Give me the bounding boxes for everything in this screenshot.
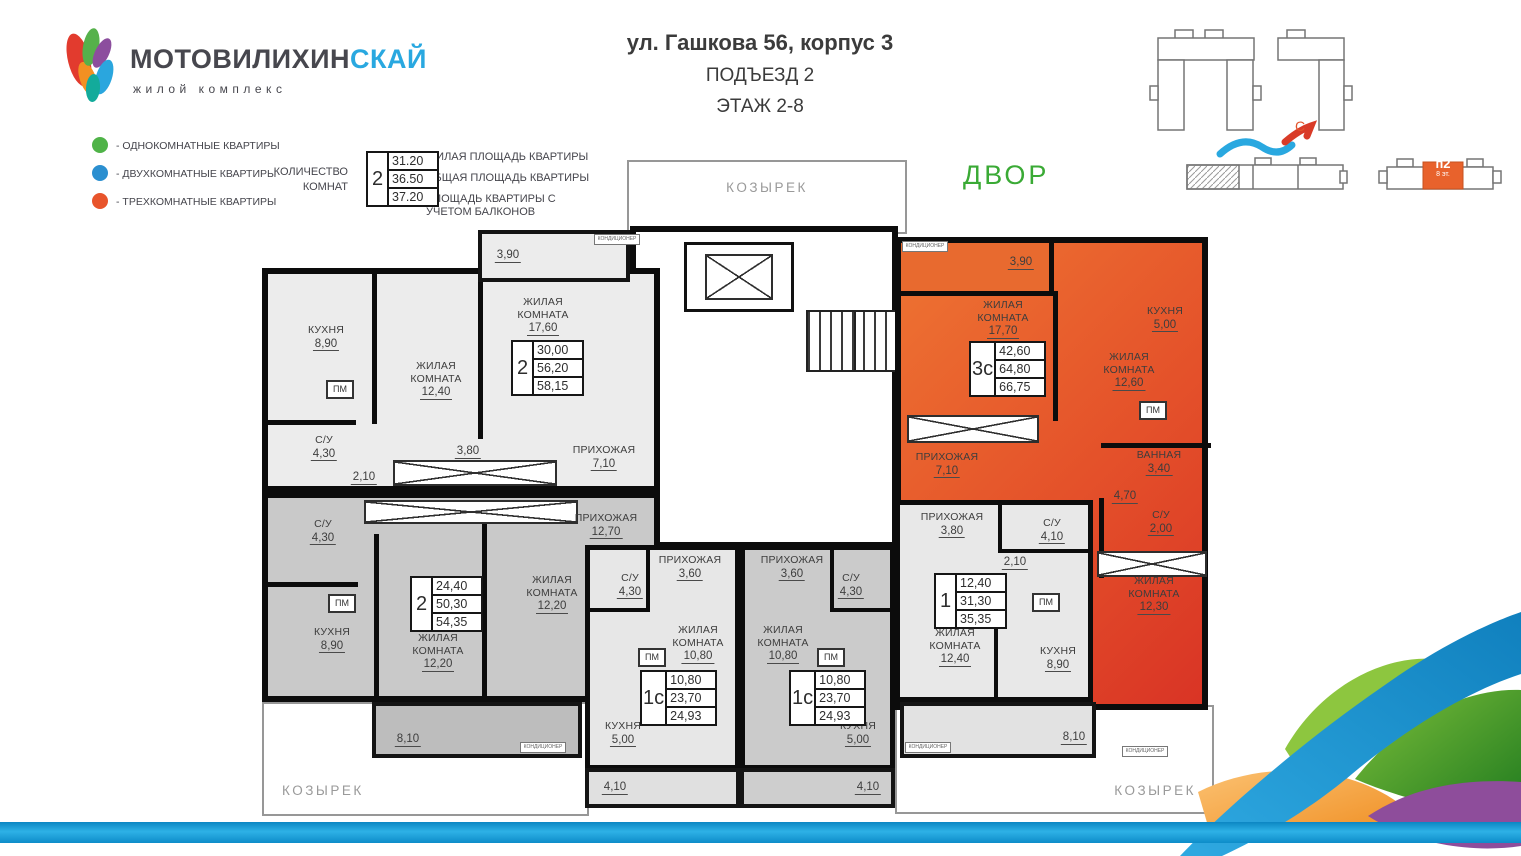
room-label-kitchen: КУХНЯ 8,90 [314, 626, 350, 653]
room-label-hallway: ПРИХОЖАЯ 7,10 [916, 451, 979, 478]
washing-machine-slot: ПМ [1139, 401, 1167, 420]
room-label-bedroom2: ЖИЛАЯ КОМНАТА 17,60 [499, 296, 587, 336]
room-label-bathroom: С/У 4,30 [310, 518, 336, 545]
room-label-bedroom1: ЖИЛАЯ КОМНАТА 12,40 [392, 360, 480, 400]
legend-dot-1room [92, 137, 108, 153]
apartment-d-infobox: 1с 10,80 23,70 24,93 [640, 670, 717, 726]
conditioner-tag: КОНДИЦИОНЕР [520, 742, 566, 753]
brand-tagline: жилой комплекс [133, 82, 286, 96]
hall-closet [364, 500, 578, 524]
room-label-kitchen: КУХНЯ 8,90 [308, 324, 344, 351]
legend-dot-2room [92, 165, 108, 181]
legend-rooms-count-label: КОЛИЧЕСТВО КОМНАТ [262, 165, 348, 195]
legend-sample-total: 36.50 [389, 171, 437, 189]
washing-machine-slot: ПМ [326, 380, 354, 399]
washing-machine-slot: ПМ [638, 648, 666, 667]
room-label-wc: С/У 2,00 [1148, 509, 1174, 536]
site-floors-label: 8 эт. [1436, 171, 1450, 179]
apartment-c-living: 24,40 [433, 578, 481, 596]
balcony-area-label: 8,10 [395, 732, 421, 747]
apartment-e-rooms: 1с [791, 672, 816, 724]
bottom-wave-bar [0, 822, 1521, 843]
apartment-f-living: 12,40 [957, 575, 1005, 593]
balcony-area-label: 4,10 [602, 780, 628, 795]
room-label-bathroom: ВАННАЯ 3,40 [1137, 449, 1182, 476]
washing-machine-slot: ПМ [328, 594, 356, 613]
apartment-d-balcony: 4,10 [585, 768, 740, 808]
brand-name: МОТОВИЛИХИНСКАЙ [130, 44, 427, 75]
page-title: ул. Гашкова 56, корпус 3 ПОДЪЕЗД 2 ЭТАЖ … [627, 30, 894, 118]
apartment-d-rooms: 1с [642, 672, 667, 724]
apartment-f-rooms: 1 [936, 575, 957, 627]
corridor-area-label: 2,10 [1002, 555, 1028, 570]
room-label-kitchen: КУХНЯ 8,90 [1040, 645, 1076, 672]
balcony-area-label: 8,10 [1061, 730, 1087, 745]
room-label-living: ЖИЛАЯ КОМНАТА 12,40 [911, 627, 999, 667]
address-title: ул. Гашкова 56, корпус 3 [627, 30, 894, 56]
brand-name-dark: МОТОВИЛИХИН [130, 44, 350, 74]
apartment-d-total-balcony: 24,93 [667, 708, 715, 724]
elevator-car [705, 254, 773, 300]
entrance-subtitle: ПОДЪЕЗД 2 [627, 65, 894, 87]
site-entrance-label[interactable]: п2 [1435, 157, 1450, 170]
legend-area-descriptions: ЖИЛАЯ ПЛОЩАДЬ КВАРТИРЫ ОБЩАЯ ПЛОЩАДЬ КВА… [426, 147, 601, 219]
room-label-hallway: ПРИХОЖАЯ 3,80 [921, 511, 984, 538]
room-label-bedroom2: ЖИЛАЯ КОМНАТА 12,20 [508, 574, 596, 614]
conditioner-tag: КОНДИЦИОНЕР [594, 234, 640, 245]
apartment-d-living: 10,80 [667, 672, 715, 690]
hallway2-area-label: 3,80 [455, 444, 481, 459]
hall-closet [393, 460, 557, 486]
legend-living-area-label: ЖИЛАЯ ПЛОЩАДЬ КВАРТИРЫ [426, 147, 601, 168]
staircase [806, 310, 902, 372]
canopy-bl-label: КОЗЫРЕК [282, 783, 364, 798]
apartment-c-total-balcony: 54,35 [433, 614, 481, 630]
apartment-e-living: 10,80 [816, 672, 864, 690]
apartment-b-infobox: 3с 42,60 64,80 66,75 [969, 341, 1046, 397]
room-label-living: ЖИЛАЯ КОМНАТА 10,80 [739, 624, 827, 664]
legend-label-3room: - ТРЕХКОМНАТНЫЕ КВАРТИРЫ [116, 196, 276, 208]
apartment-b-living: 42,60 [996, 343, 1044, 361]
legend-dot-3room [92, 193, 108, 209]
legend-sample-balcony: 37.20 [389, 189, 437, 205]
apartment-b-total: 64,80 [996, 361, 1044, 379]
apartment-f-infobox: 1 12,40 31,30 35,35 [934, 573, 1007, 629]
courtyard-label: ДВОР [963, 160, 1049, 191]
apartment-b-rooms: 3с [971, 343, 996, 395]
apartment-f-1room[interactable]: ПМ ПРИХОЖАЯ 3,80 С/У 4,10 2,10 ЖИЛАЯ КОМ… [895, 500, 1093, 702]
balcony-area-label: 3,90 [495, 248, 521, 263]
room-label-livingroom3: ЖИЛАЯ КОМНАТА 12,30 [1128, 575, 1179, 615]
apartment-e-total: 23,70 [816, 690, 864, 708]
legend-sample-living: 31.20 [389, 153, 437, 171]
legend-label-1room: - ОДНОКОМНАТНЫЕ КВАРТИРЫ [116, 140, 280, 152]
conditioner-tag: КОНДИЦИОНЕР [902, 241, 948, 252]
room-label-bedroom1: ЖИЛАЯ КОМНАТА 12,20 [394, 632, 482, 672]
apartment-d-total: 23,70 [667, 690, 715, 708]
apartment-a-total-balcony: 58,15 [534, 378, 582, 394]
conditioner-tag: КОНДИЦИОНЕР [905, 742, 951, 753]
apartment-f-total: 31,30 [957, 593, 1005, 611]
room-label-hallway: ПРИХОЖАЯ 3,60 [761, 554, 824, 581]
apartment-a-infobox: 2 30,00 56,20 58,15 [511, 340, 584, 396]
room-label-bathroom: С/У 4,30 [617, 572, 643, 599]
room-label-kitchen: КУХНЯ 5,00 [1147, 305, 1183, 332]
apartment-a-2room[interactable]: ПМ КУХНЯ 8,90 ЖИЛАЯ КОМНАТА 12,40 ЖИЛАЯ … [262, 268, 660, 492]
room-label-bathroom: С/У 4,30 [838, 572, 864, 599]
room-label-livingroom2: ЖИЛАЯ КОМНАТА 12,60 [1093, 351, 1166, 391]
balcony-area-label: 3,90 [1008, 255, 1034, 270]
corridor-area-label: 2,10 [351, 470, 377, 485]
apartment-c-rooms: 2 [412, 578, 433, 630]
balcony-area-label: 4,10 [855, 780, 881, 795]
room-label-livingroom1: ЖИЛАЯ КОМНАТА 17,70 [959, 299, 1047, 339]
apartment-c-total: 50,30 [433, 596, 481, 614]
site-plan [1135, 16, 1521, 212]
stairwell-core [630, 226, 898, 548]
apartment-e-balcony: 4,10 [740, 768, 895, 808]
floor-range-subtitle: ЭТАЖ 2-8 [627, 96, 894, 118]
brand-flame-icon [64, 22, 118, 110]
apartment-a-rooms: 2 [513, 342, 534, 394]
washing-machine-slot: ПМ [1032, 593, 1060, 612]
apartment-c-infobox: 2 24,40 50,30 54,35 [410, 576, 483, 632]
apartment-a-living: 30,00 [534, 342, 582, 360]
legend-label-2room: - ДВУХКОМНАТНЫЕ КВАРТИРЫ [116, 168, 276, 180]
room-label-bathroom: С/У 4,10 [1039, 517, 1065, 544]
corner-wave-graphic [1180, 584, 1521, 856]
floorplan-page: { "brand": {"name_dark": "МОТОВИЛИХИН", … [0, 0, 1521, 856]
room-label-kitchen: КУХНЯ 5,00 [605, 720, 641, 747]
room-label-living: ЖИЛАЯ КОМНАТА 10,80 [672, 624, 723, 664]
corridor-area-label: 4,70 [1112, 489, 1138, 504]
legend-sample-infobox: 2 31.20 36.50 37.20 [366, 151, 439, 207]
room-closet [1097, 551, 1207, 577]
room-label-hallway: ПРИХОЖАЯ 12,70 [575, 512, 638, 539]
conditioner-tag: КОНДИЦИОНЕР [1122, 746, 1168, 757]
elevator-shaft [684, 242, 794, 312]
apartment-d-studio[interactable]: ПМ ПРИХОЖАЯ 3,60 С/У 4,30 ЖИЛАЯ КОМНАТА … [585, 545, 740, 770]
brand-name-accent: СКАЙ [350, 44, 427, 74]
apartment-e-total-balcony: 24,93 [816, 708, 864, 724]
legend-balcony-area-label: ПЛОЩАДЬ КВАРТИРЫ С УЧЕТОМ БАЛКОНОВ [426, 193, 601, 219]
canopy-top: КОЗЫРЕК [627, 160, 907, 234]
legend-sample-rooms: 2 [368, 153, 389, 205]
apartment-f-total-balcony: 35,35 [957, 611, 1005, 627]
north-indicator: С [1295, 118, 1305, 134]
room-label-hallway: ПРИХОЖАЯ 7,10 [573, 444, 636, 471]
room-label-bathroom: С/У 4,30 [311, 434, 337, 461]
hall-closet [907, 415, 1039, 443]
apartment-e-studio[interactable]: ПМ ПРИХОЖАЯ 3,60 С/У 4,30 ЖИЛАЯ КОМНАТА … [740, 545, 895, 770]
room-label-hallway: ПРИХОЖАЯ 3,60 [659, 554, 722, 581]
apartment-b-total-balcony: 66,75 [996, 379, 1044, 395]
legend-total-area-label: ОБЩАЯ ПЛОЩАДЬ КВАРТИРЫ [426, 168, 601, 189]
apartment-a-total: 56,20 [534, 360, 582, 378]
canopy-top-label: КОЗЫРЕК [726, 180, 808, 195]
apartment-e-infobox: 1с 10,80 23,70 24,93 [789, 670, 866, 726]
